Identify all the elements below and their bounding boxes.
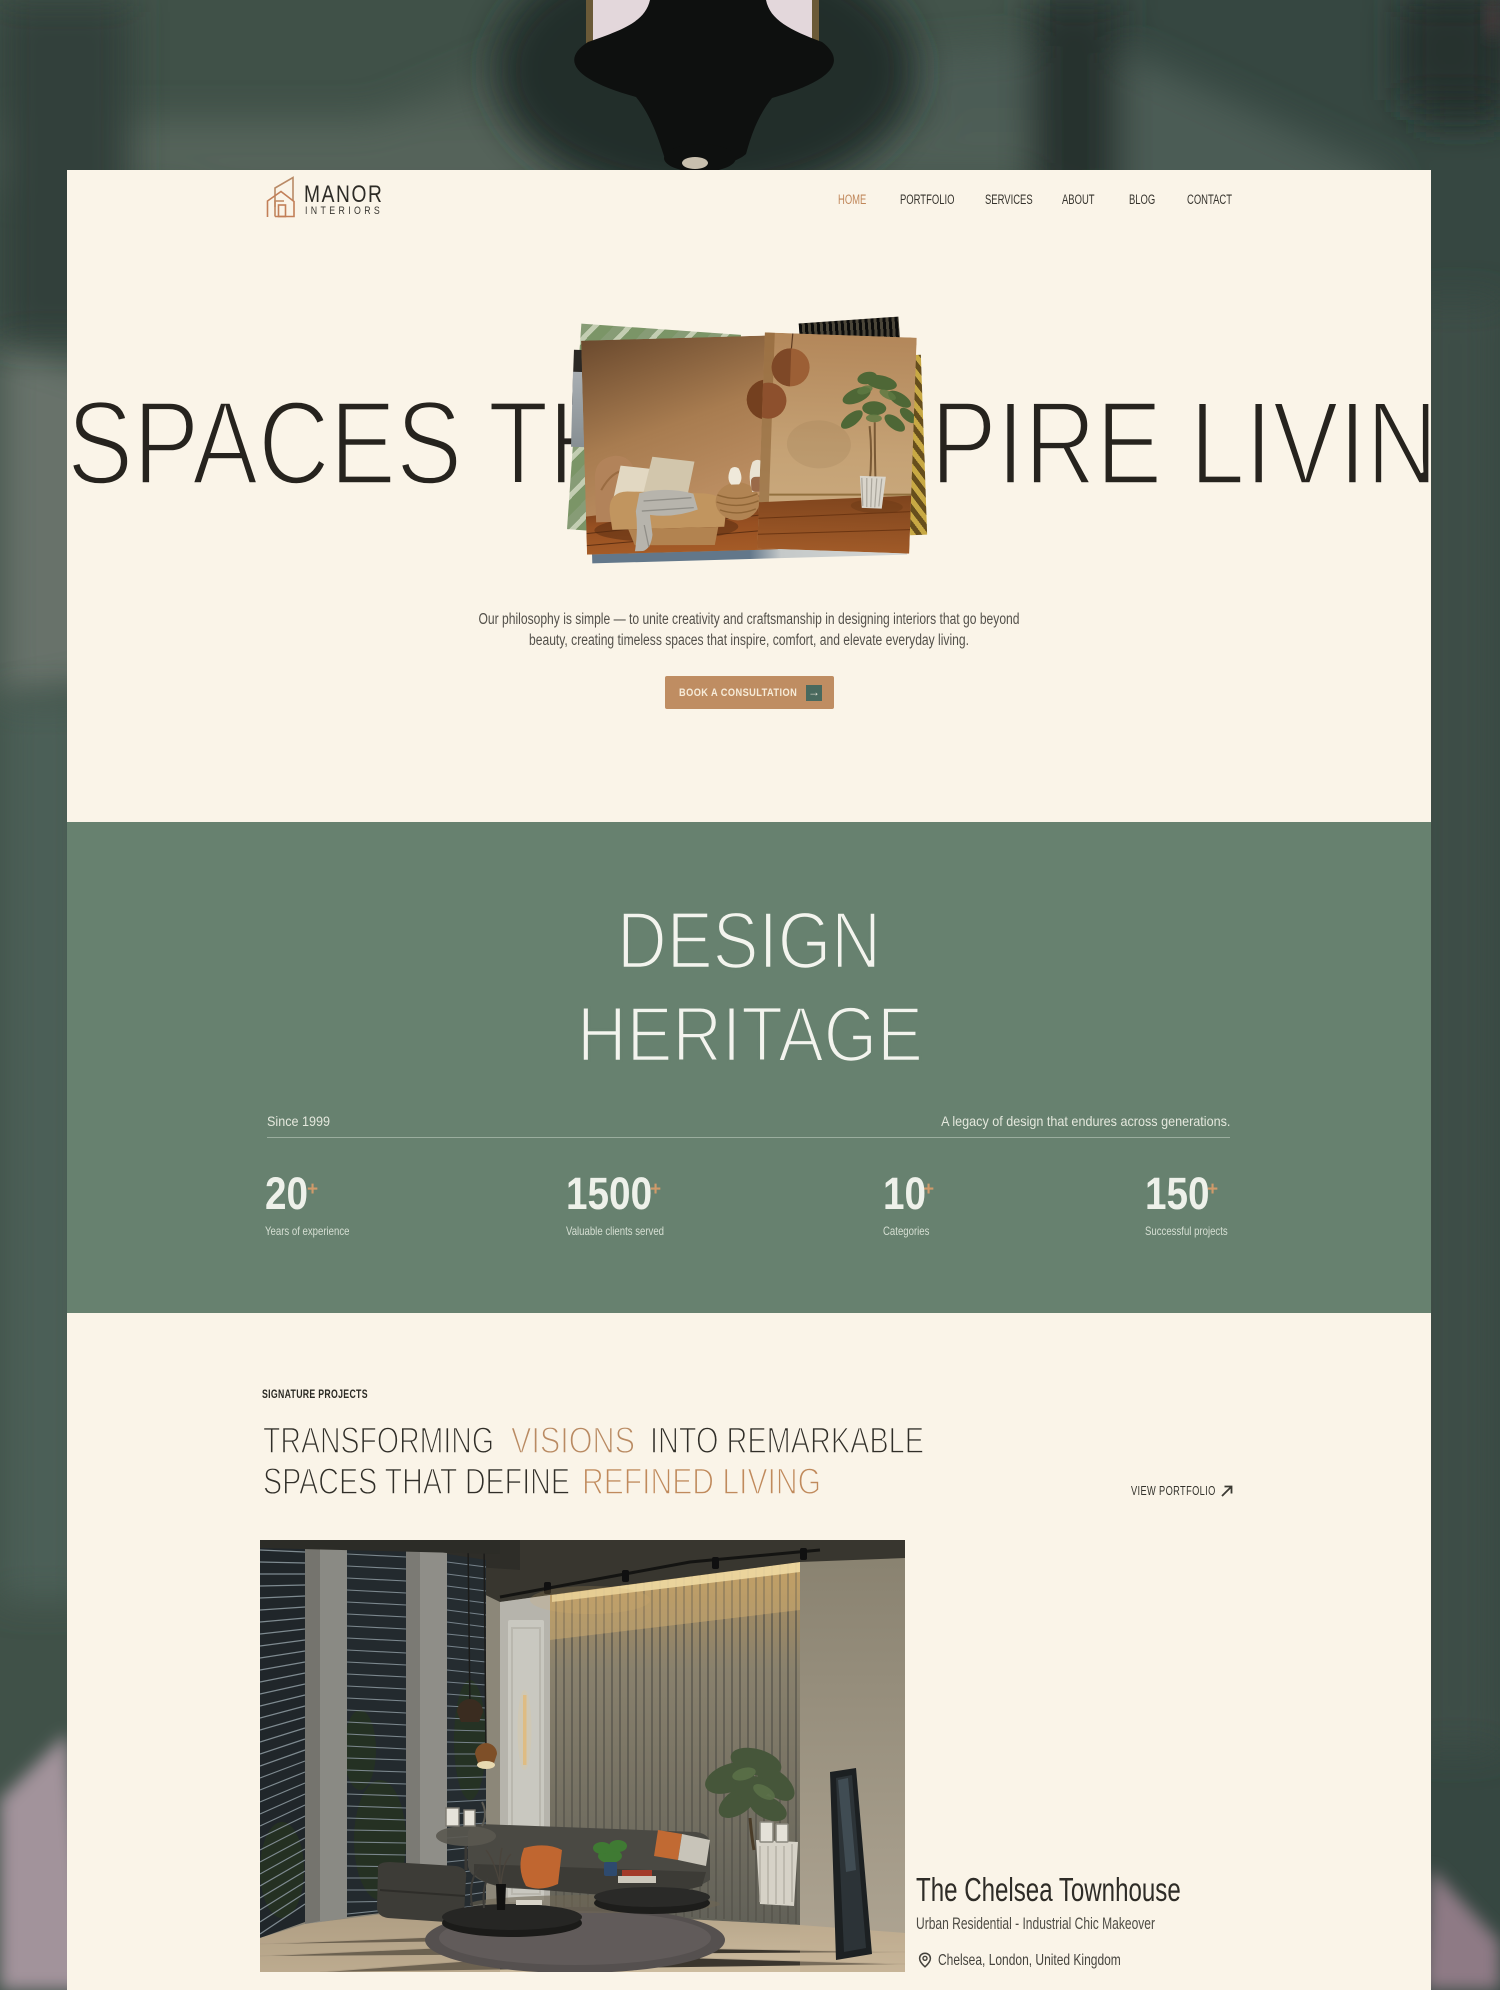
svg-text:VISIONS: VISIONS	[511, 1420, 635, 1461]
svg-text:REFINED LIVING: REFINED LIVING	[582, 1461, 821, 1502]
svg-text:DESIGN: DESIGN	[617, 896, 881, 986]
svg-text:INTO REMARKABLE: INTO REMARKABLE	[650, 1420, 924, 1461]
svg-text:TRANSFORMING: TRANSFORMING	[263, 1420, 494, 1461]
svg-text:HERITAGE: HERITAGE	[577, 990, 923, 1078]
svg-text:SPACES THAT DEFINE: SPACES THAT DEFINE	[263, 1461, 570, 1502]
